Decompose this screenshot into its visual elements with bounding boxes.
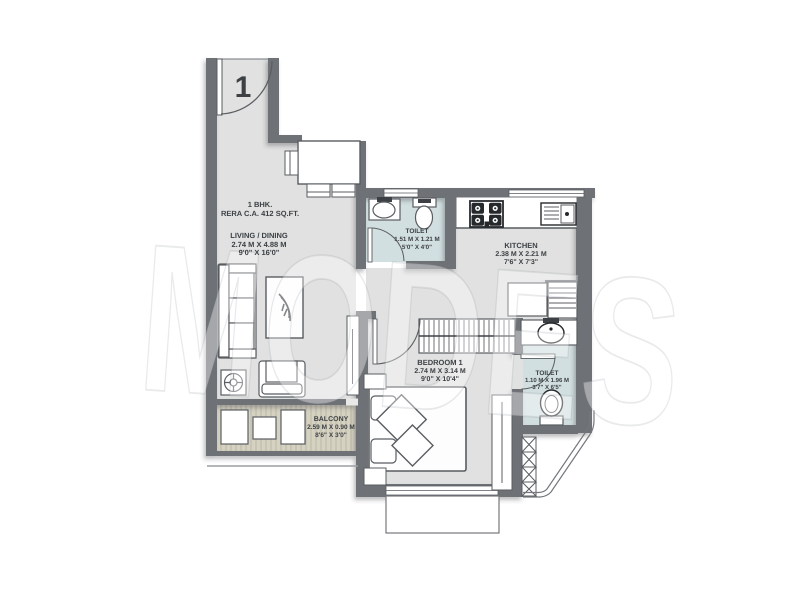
svg-text:TOILET: TOILET	[536, 370, 559, 377]
svg-text:1.10 M X 1.96 M: 1.10 M X 1.96 M	[525, 377, 569, 384]
svg-text:1: 1	[235, 71, 252, 104]
svg-text:8'6" X 3'0": 8'6" X 3'0"	[315, 432, 347, 439]
svg-text:KITCHEN: KITCHEN	[504, 241, 537, 250]
svg-text:BEDROOM 1: BEDROOM 1	[417, 358, 462, 367]
svg-text:LIVING / DINING: LIVING / DINING	[230, 231, 288, 240]
svg-text:TOILET: TOILET	[406, 228, 429, 235]
svg-text:2.74 M X 3.14 M: 2.74 M X 3.14 M	[414, 368, 466, 375]
svg-text:1.51 M X 1.21 M: 1.51 M X 1.21 M	[394, 236, 439, 243]
svg-text:RERA C.A. 412 SQ.FT.: RERA C.A. 412 SQ.FT.	[221, 209, 299, 218]
svg-text:1 BHK.: 1 BHK.	[248, 200, 273, 209]
svg-text:9'0" X 10'4": 9'0" X 10'4"	[421, 376, 459, 383]
svg-text:3'7" X 6'5": 3'7" X 6'5"	[532, 384, 561, 391]
svg-text:BALCONY: BALCONY	[314, 416, 349, 423]
svg-text:5'0" X 4'0": 5'0" X 4'0"	[402, 244, 432, 251]
svg-text:7'6" X 7'3": 7'6" X 7'3"	[504, 259, 538, 266]
svg-text:2.59 M X 0.90 M: 2.59 M X 0.90 M	[307, 424, 355, 431]
svg-text:2.38 M X 2.21 M: 2.38 M X 2.21 M	[495, 251, 547, 258]
svg-text:9'0" X 16'0": 9'0" X 16'0"	[239, 248, 280, 257]
